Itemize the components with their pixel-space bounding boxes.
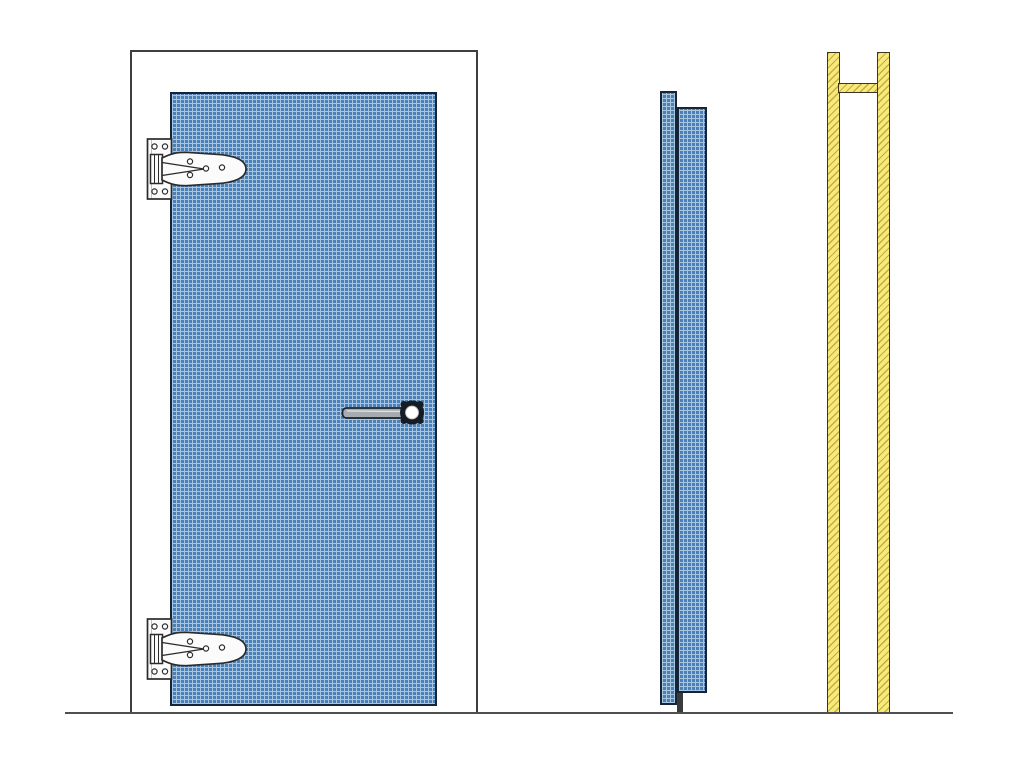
strap-hole-icon	[219, 165, 224, 170]
hinge-strap	[162, 632, 246, 665]
strap-hole-icon	[187, 159, 192, 164]
handle-lever	[343, 408, 407, 418]
screw-hole-icon	[162, 189, 167, 194]
screw-hole-icon	[152, 144, 157, 149]
technical-drawing-canvas	[0, 0, 1024, 768]
lever-handle	[340, 395, 430, 431]
screw-hole-icon	[162, 624, 167, 629]
bottom-seal-bar	[677, 693, 683, 714]
leaf-core-panel	[677, 107, 707, 693]
floor-line	[65, 712, 953, 714]
screw-hole-icon	[162, 144, 167, 149]
head-rail	[838, 83, 878, 93]
strap-hole-icon	[219, 645, 224, 650]
strap-hole-icon	[187, 639, 192, 644]
screw-hole-icon	[152, 189, 157, 194]
screw-hole-icon	[162, 669, 167, 674]
left-jamb	[827, 52, 840, 713]
right-jamb	[877, 52, 890, 713]
strap-hinge-top	[146, 130, 250, 208]
hinge-barrel	[151, 635, 163, 664]
leaf-overlay-panel	[660, 91, 677, 705]
strap-hinge-bottom	[146, 610, 250, 688]
strap-hole-icon	[203, 166, 208, 171]
hinge-strap	[162, 152, 246, 185]
hinge-barrel	[151, 155, 163, 184]
strap-hole-icon	[203, 646, 208, 651]
screw-hole-icon	[152, 624, 157, 629]
strap-hole-icon	[187, 652, 192, 657]
handle-rosette	[400, 401, 424, 425]
strap-hole-icon	[187, 172, 192, 177]
screw-hole-icon	[152, 669, 157, 674]
